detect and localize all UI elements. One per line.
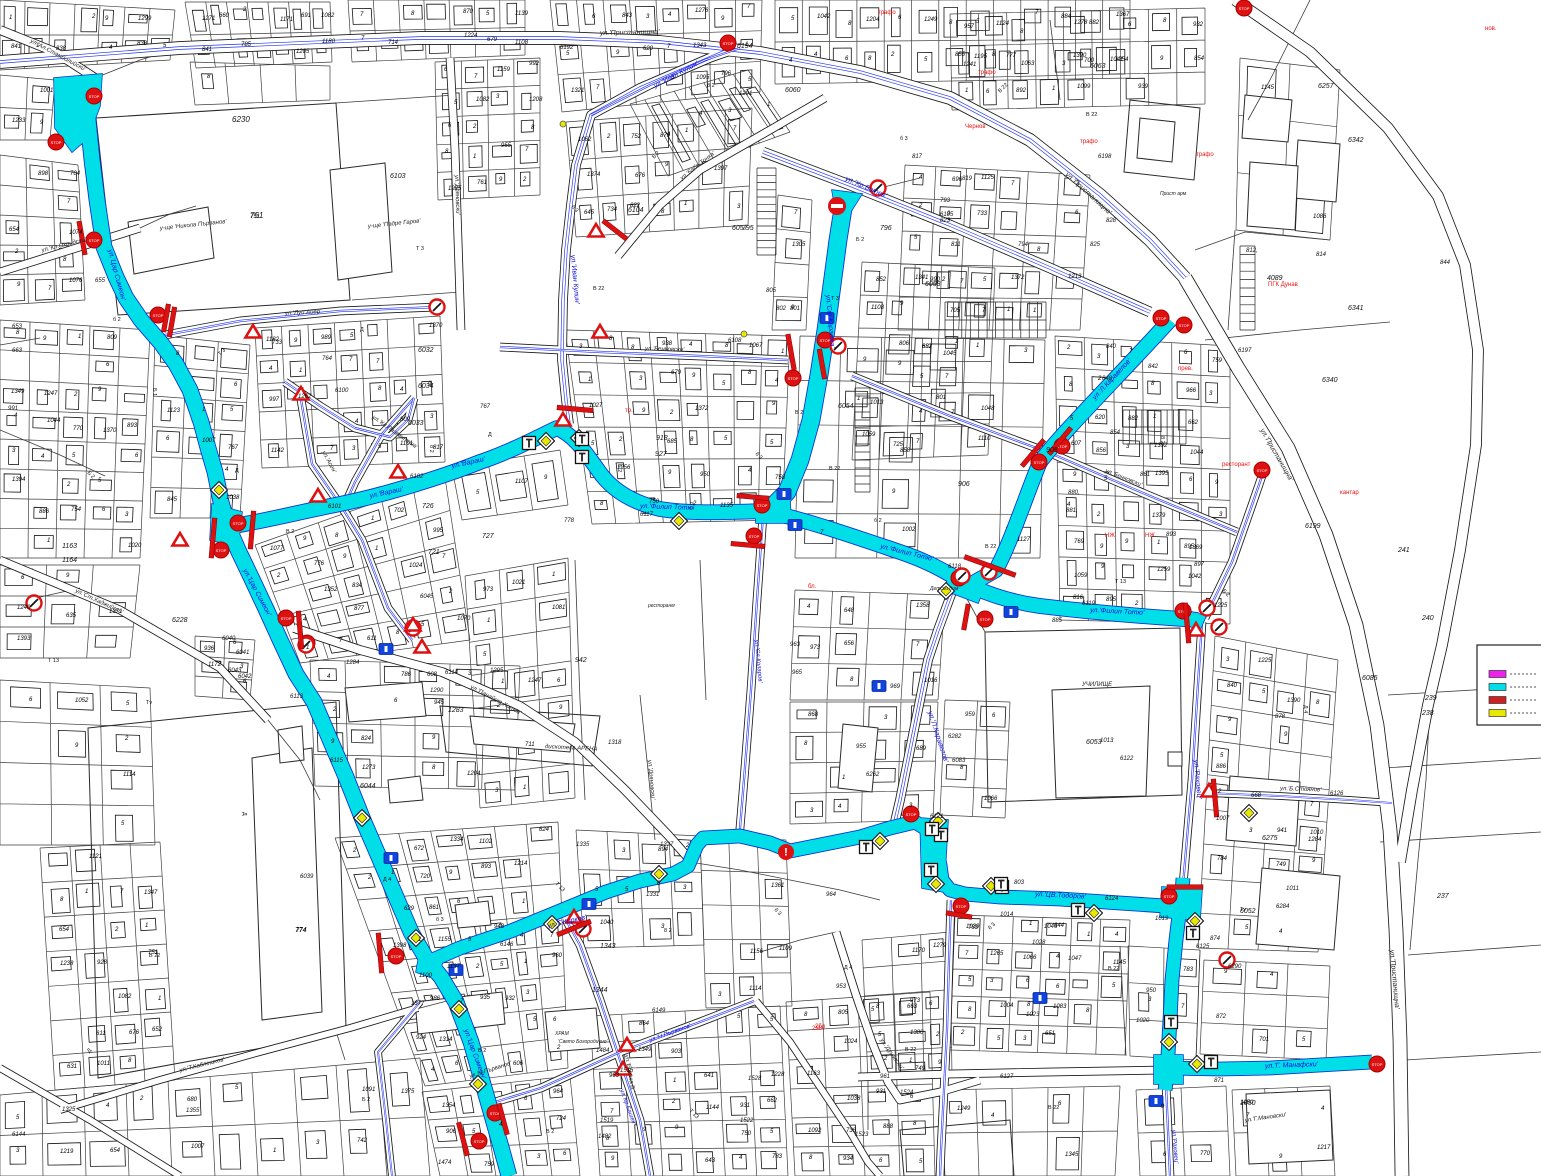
svg-text:1: 1 — [306, 645, 309, 651]
svg-text:STOP: STOP — [1156, 316, 1167, 321]
svg-text:932: 932 — [505, 996, 516, 1002]
svg-text:793: 793 — [940, 198, 951, 204]
svg-text:1334: 1334 — [450, 837, 464, 843]
svg-text:1217: 1217 — [1317, 1145, 1331, 1151]
svg-text:1042: 1042 — [817, 14, 831, 20]
svg-text:1163: 1163 — [807, 1071, 821, 1077]
svg-text:2: 2 — [960, 1030, 965, 1036]
svg-text:1109: 1109 — [779, 946, 793, 952]
svg-text:6198: 6198 — [1098, 154, 1112, 160]
svg-text:1482: 1482 — [598, 1134, 612, 1140]
svg-text:1522: 1522 — [740, 1118, 754, 1124]
svg-text:761: 761 — [477, 180, 487, 186]
svg-text:905: 905 — [1046, 447, 1058, 454]
svg-text:6034: 6034 — [418, 383, 434, 390]
svg-text:1099: 1099 — [1077, 84, 1091, 90]
svg-text:1515: 1515 — [620, 1068, 634, 1074]
svg-text:941: 941 — [1277, 828, 1287, 834]
svg-text:2бл: 2бл — [815, 1024, 826, 1030]
svg-text:1352: 1352 — [324, 587, 338, 593]
svg-text:Т 13: Т 13 — [48, 658, 59, 664]
svg-text:1358: 1358 — [916, 603, 930, 609]
svg-text:1163: 1163 — [62, 543, 77, 550]
svg-text:1020: 1020 — [1136, 1018, 1150, 1024]
svg-text:1: 1 — [588, 377, 591, 383]
svg-text:960: 960 — [552, 953, 563, 959]
svg-text:1372: 1372 — [1011, 275, 1025, 281]
svg-text:796: 796 — [880, 225, 892, 232]
svg-text:1010: 1010 — [1310, 830, 1324, 836]
svg-text:1343: 1343 — [600, 943, 616, 950]
svg-text:726: 726 — [422, 503, 434, 510]
svg-text:STOP: STOP — [89, 238, 100, 243]
svg-text:624: 624 — [539, 827, 550, 833]
svg-text:1: 1 — [857, 396, 860, 402]
svg-text:STOP: STOP — [1239, 6, 1250, 11]
svg-text:трафо: трафо — [1196, 152, 1214, 158]
svg-text:'Свето Богородично': 'Свето Богородично' — [558, 1039, 609, 1045]
svg-text:трафо: трафо — [1080, 139, 1098, 145]
svg-text:854: 854 — [1110, 430, 1121, 436]
svg-text:1390: 1390 — [1287, 698, 1301, 704]
svg-text:1124: 1124 — [996, 21, 1010, 27]
svg-text:1050: 1050 — [1240, 1100, 1254, 1106]
svg-text:2: 2 — [671, 1099, 676, 1105]
svg-text:892: 892 — [1016, 88, 1027, 94]
svg-text:STOP: STOP — [1164, 894, 1175, 899]
svg-text:1007: 1007 — [191, 1144, 205, 1150]
svg-text:1016: 1016 — [924, 678, 938, 684]
svg-text:1290: 1290 — [430, 688, 444, 694]
svg-text:811: 811 — [951, 242, 961, 248]
svg-text:STOP: STOP — [1034, 460, 1045, 465]
svg-text:751: 751 — [250, 214, 260, 220]
svg-text:679: 679 — [671, 370, 682, 376]
svg-text:1145: 1145 — [1261, 85, 1275, 91]
svg-text:1: 1 — [1007, 307, 1010, 313]
svg-text:660: 660 — [219, 13, 230, 19]
svg-text:1: 1 — [1052, 86, 1055, 92]
svg-text:1046: 1046 — [1044, 924, 1058, 930]
svg-text:858: 858 — [900, 448, 911, 454]
svg-text:945: 945 — [434, 700, 445, 706]
svg-text:963: 963 — [609, 1073, 620, 1079]
svg-text:794: 794 — [1018, 242, 1029, 248]
svg-text:В 22: В 22 — [905, 1047, 916, 1053]
svg-text:1027: 1027 — [589, 403, 603, 409]
svg-text:2: 2 — [890, 52, 895, 58]
svg-text:6192: 6192 — [560, 45, 574, 51]
svg-text:1262: 1262 — [298, 394, 312, 400]
svg-text:805: 805 — [838, 1010, 849, 1016]
svg-text:239: 239 — [1424, 695, 1437, 702]
svg-text:6122: 6122 — [1120, 756, 1134, 762]
svg-text:1007: 1007 — [202, 438, 216, 444]
svg-text:931: 931 — [876, 1089, 886, 1095]
svg-text:727: 727 — [482, 533, 495, 540]
svg-text:961: 961 — [880, 1074, 890, 1080]
svg-text:6058: 6058 — [925, 281, 941, 288]
svg-text:1038: 1038 — [847, 1096, 861, 1102]
svg-text:1233: 1233 — [12, 118, 26, 124]
svg-text:656: 656 — [844, 641, 855, 647]
svg-text:721: 721 — [428, 549, 440, 556]
svg-text:238: 238 — [1421, 710, 1434, 717]
svg-text:1083: 1083 — [1053, 1004, 1067, 1010]
svg-text:1100: 1100 — [419, 973, 433, 979]
svg-text:1164: 1164 — [62, 557, 77, 564]
svg-text:868: 868 — [808, 712, 819, 718]
svg-text:1040: 1040 — [600, 920, 614, 926]
svg-text:1249: 1249 — [957, 1106, 971, 1112]
svg-text:702: 702 — [394, 508, 405, 514]
svg-text:В 22: В 22 — [149, 953, 160, 959]
svg-text:1066: 1066 — [984, 796, 998, 802]
svg-text:943: 943 — [494, 924, 505, 930]
svg-text:1225: 1225 — [1258, 658, 1272, 664]
svg-text:1180: 1180 — [322, 39, 336, 45]
svg-text:6262: 6262 — [866, 772, 880, 778]
svg-text:2: 2 — [606, 134, 611, 140]
svg-text:В 22: В 22 — [1048, 1105, 1059, 1111]
svg-text:959: 959 — [965, 712, 976, 718]
svg-text:1398: 1398 — [393, 943, 407, 949]
svg-text:2: 2 — [918, 203, 923, 209]
svg-text:662: 662 — [767, 1098, 778, 1104]
svg-text:6127: 6127 — [1000, 1074, 1014, 1080]
svg-text:1: 1 — [781, 349, 784, 355]
svg-text:1205: 1205 — [296, 49, 310, 55]
svg-text:1: 1 — [418, 937, 421, 943]
svg-text:1295: 1295 — [490, 668, 504, 674]
svg-text:802: 802 — [776, 306, 787, 312]
svg-text:2: 2 — [114, 927, 119, 933]
svg-text:861: 861 — [1140, 472, 1150, 478]
svg-text:2: 2 — [475, 964, 480, 970]
svg-text:1086: 1086 — [1313, 214, 1327, 220]
svg-text:В 22: В 22 — [1108, 966, 1119, 972]
svg-text:1052: 1052 — [75, 698, 89, 704]
svg-text:STOP: STOP — [153, 313, 164, 318]
svg-text:834: 834 — [352, 583, 363, 589]
svg-text:854: 854 — [1194, 56, 1205, 62]
svg-text:806: 806 — [899, 341, 910, 347]
svg-text:870: 870 — [463, 9, 474, 15]
svg-text:1265: 1265 — [990, 951, 1004, 957]
svg-text:874: 874 — [1210, 936, 1221, 942]
svg-text:1: 1 — [522, 899, 525, 905]
svg-text:6124: 6124 — [1105, 896, 1119, 902]
svg-text:691: 691 — [301, 13, 311, 19]
svg-text:882: 882 — [1128, 416, 1139, 422]
svg-text:1044: 1044 — [47, 418, 61, 424]
svg-text:882: 882 — [1089, 20, 1100, 26]
svg-text:1: 1 — [1153, 414, 1156, 420]
svg-text:842: 842 — [1148, 364, 1159, 370]
svg-text:6228: 6228 — [172, 617, 188, 624]
svg-text:1102: 1102 — [479, 839, 493, 845]
svg-text:886: 886 — [1216, 764, 1227, 770]
svg-text:824: 824 — [361, 736, 372, 742]
svg-text:733: 733 — [977, 211, 988, 217]
svg-text:1228: 1228 — [771, 1072, 785, 1078]
svg-text:1204: 1204 — [866, 17, 880, 23]
svg-text:1524: 1524 — [900, 1090, 914, 1096]
svg-text:770: 770 — [1200, 1151, 1211, 1157]
svg-text:8 2: 8 2 — [1159, 436, 1165, 444]
svg-text:6044: 6044 — [360, 783, 376, 790]
svg-text:Тv: Тv — [146, 700, 152, 706]
svg-text:237: 237 — [1436, 893, 1450, 900]
svg-text:1002: 1002 — [902, 527, 916, 533]
svg-text:1213: 1213 — [1068, 274, 1082, 280]
svg-text:1: 1 — [145, 923, 148, 929]
svg-text:кантар: кантар — [1340, 490, 1359, 496]
svg-text:В 2: В 2 — [478, 1048, 486, 1054]
svg-text:654: 654 — [59, 927, 70, 933]
svg-text:1070: 1070 — [457, 616, 471, 622]
svg-text:924: 924 — [416, 1035, 427, 1041]
svg-text:679: 679 — [487, 37, 498, 43]
svg-text:6085: 6085 — [1362, 675, 1378, 682]
svg-text:1: 1 — [909, 1058, 912, 1064]
svg-text:STOP: STOP — [281, 616, 292, 621]
svg-text:Б 2: Б 2 — [362, 1097, 370, 1103]
svg-text:1: 1 — [47, 538, 50, 544]
svg-text:2: 2 — [1134, 601, 1139, 607]
svg-text:6341: 6341 — [1348, 305, 1364, 312]
svg-text:662: 662 — [1188, 420, 1199, 426]
svg-text:1: 1 — [487, 618, 490, 624]
svg-text:1062: 1062 — [578, 137, 592, 143]
svg-text:631: 631 — [67, 1064, 77, 1070]
svg-text:742: 742 — [357, 1138, 368, 1144]
svg-text:6083: 6083 — [952, 758, 966, 764]
svg-text:840: 840 — [1106, 344, 1117, 350]
svg-text:6121: 6121 — [930, 814, 943, 820]
svg-text:6060: 6060 — [785, 87, 801, 94]
svg-text:672: 672 — [414, 846, 425, 852]
svg-text:1318: 1318 — [608, 740, 622, 746]
svg-text:2: 2 — [91, 14, 96, 20]
svg-text:1327: 1327 — [660, 842, 674, 848]
svg-text:805: 805 — [766, 288, 777, 294]
svg-text:ресторанм: ресторанм — [647, 603, 675, 609]
svg-text:861: 861 — [429, 905, 439, 911]
svg-text:764: 764 — [322, 356, 333, 362]
svg-text:241: 241 — [1397, 547, 1410, 554]
svg-text:1074: 1074 — [69, 230, 83, 236]
svg-text:1259: 1259 — [1157, 567, 1171, 573]
svg-text:Д: Д — [241, 812, 247, 816]
svg-text:734: 734 — [607, 207, 618, 213]
svg-text:1331: 1331 — [646, 892, 659, 898]
svg-text:2: 2 — [139, 1096, 144, 1102]
svg-text:6125: 6125 — [1196, 944, 1210, 950]
svg-text:1108: 1108 — [871, 305, 885, 311]
svg-text:1: 1 — [391, 870, 394, 876]
svg-text:6041: 6041 — [236, 650, 249, 656]
svg-text:1372: 1372 — [695, 406, 709, 412]
svg-text:1375: 1375 — [401, 1089, 415, 1095]
svg-text:6119: 6119 — [1082, 601, 1096, 607]
svg-text:871: 871 — [1214, 1078, 1224, 1084]
svg-text:1038: 1038 — [226, 495, 240, 501]
svg-text:4089: 4089 — [1267, 275, 1283, 282]
svg-text:УЧИЛИЩЕ: УЧИЛИЩЕ — [1081, 682, 1113, 688]
svg-text:654: 654 — [110, 1148, 121, 1154]
svg-text:1: 1 — [524, 959, 527, 965]
svg-text:1082: 1082 — [321, 13, 335, 19]
svg-text:957: 957 — [964, 24, 975, 30]
svg-text:814: 814 — [1316, 252, 1327, 258]
svg-text:1370: 1370 — [429, 323, 443, 329]
svg-text:1380: 1380 — [910, 1030, 924, 1036]
svg-text:1224: 1224 — [464, 33, 478, 39]
svg-text:1345: 1345 — [1065, 1152, 1079, 1158]
svg-text:2: 2 — [332, 707, 337, 713]
svg-text:Д 4: Д 4 — [844, 965, 852, 971]
svg-text:1076: 1076 — [69, 278, 83, 284]
svg-text:1127: 1127 — [1017, 537, 1031, 543]
svg-text:720: 720 — [420, 874, 431, 880]
svg-text:635: 635 — [66, 613, 77, 619]
svg-text:1123: 1123 — [167, 408, 181, 414]
svg-text:783: 783 — [1183, 967, 1194, 973]
svg-text:STOP: STOP — [216, 548, 227, 553]
svg-text:759: 759 — [1212, 358, 1223, 364]
svg-text:1374: 1374 — [587, 172, 601, 178]
svg-text:966: 966 — [1186, 388, 1197, 394]
svg-text:1: 1 — [523, 785, 526, 791]
svg-text:1377: 1377 — [411, 1001, 425, 1007]
svg-text:STOP: STOP — [51, 140, 62, 145]
svg-text:1023: 1023 — [1026, 1012, 1040, 1018]
svg-text:689: 689 — [916, 746, 927, 752]
svg-text:1: 1 — [685, 128, 688, 134]
svg-text:620: 620 — [643, 46, 654, 52]
svg-text:б 2: б 2 — [874, 518, 882, 524]
svg-text:1219: 1219 — [60, 1149, 74, 1155]
svg-text:1276: 1276 — [695, 8, 709, 14]
svg-text:6104: 6104 — [628, 207, 644, 214]
svg-text:1011: 1011 — [1286, 886, 1299, 892]
svg-text:643: 643 — [705, 1158, 716, 1164]
svg-text:2: 2 — [1217, 789, 1222, 795]
svg-text:2: 2 — [935, 1032, 940, 1038]
svg-text:6282: 6282 — [948, 734, 962, 740]
svg-text:837: 837 — [922, 344, 933, 350]
svg-text:1144: 1144 — [706, 1105, 720, 1111]
svg-text:942: 942 — [575, 657, 587, 664]
svg-text:1028: 1028 — [1032, 940, 1046, 946]
svg-text:918: 918 — [656, 435, 668, 442]
svg-text:1279: 1279 — [933, 943, 947, 949]
svg-text:758: 758 — [775, 475, 786, 481]
svg-text:2: 2 — [883, 1056, 888, 1062]
svg-text:6113: 6113 — [290, 694, 304, 700]
svg-text:752: 752 — [631, 134, 642, 140]
svg-text:6045: 6045 — [420, 594, 434, 600]
svg-text:1107: 1107 — [515, 479, 529, 485]
svg-text:НЖ: НЖ — [1145, 533, 1155, 539]
svg-text:648: 648 — [844, 608, 855, 614]
svg-text:651: 651 — [1045, 1031, 1055, 1037]
svg-text:6149: 6149 — [652, 1008, 666, 1014]
svg-text:1059: 1059 — [862, 432, 876, 438]
svg-text:Б 1: Б 1 — [151, 388, 157, 396]
svg-text:6102: 6102 — [410, 474, 424, 480]
svg-text:1325: 1325 — [62, 1107, 76, 1113]
svg-text:611: 611 — [367, 636, 377, 642]
svg-text:6194: 6194 — [737, 43, 753, 50]
svg-text:Д: Д — [360, 327, 364, 333]
svg-text:852: 852 — [876, 277, 887, 283]
svg-text:606: 606 — [513, 1061, 524, 1067]
svg-text:1195: 1195 — [974, 54, 988, 60]
svg-text:6103: 6103 — [390, 173, 406, 180]
svg-text:нов.: нов. — [1485, 26, 1497, 32]
svg-text:1379: 1379 — [1152, 513, 1166, 519]
svg-text:1214: 1214 — [514, 861, 528, 867]
svg-text:973: 973 — [810, 645, 821, 651]
svg-text:прев.: прев. — [1178, 366, 1193, 372]
svg-text:1024: 1024 — [844, 1039, 858, 1045]
svg-text:685: 685 — [667, 439, 678, 445]
svg-text:2: 2 — [448, 589, 453, 595]
svg-text:823: 823 — [940, 218, 951, 224]
svg-text:6057: 6057 — [732, 225, 749, 232]
svg-text:240: 240 — [1421, 615, 1434, 622]
svg-text:931: 931 — [740, 1103, 750, 1109]
svg-text:1020: 1020 — [128, 543, 142, 549]
svg-text:939: 939 — [1138, 84, 1149, 90]
svg-text:Детски дом: Детски дом — [929, 586, 959, 592]
svg-text:6197: 6197 — [1238, 348, 1252, 354]
svg-text:991: 991 — [8, 406, 18, 412]
svg-text:6284: 6284 — [1276, 904, 1290, 910]
svg-text:1: 1 — [1033, 308, 1036, 314]
svg-text:714: 714 — [388, 40, 399, 46]
svg-text:711: 711 — [525, 742, 535, 748]
svg-text:STOP: STOP — [980, 617, 991, 622]
svg-text:770: 770 — [73, 426, 84, 432]
svg-text:трафо: трафо — [878, 10, 896, 16]
svg-text:864: 864 — [639, 1021, 650, 1027]
svg-text:629: 629 — [404, 906, 415, 912]
svg-text:964: 964 — [553, 1089, 564, 1095]
svg-text:1354: 1354 — [442, 1103, 456, 1109]
svg-text:6115: 6115 — [330, 758, 344, 764]
svg-text:STOP: STOP — [788, 376, 799, 381]
svg-text:трафо: трафо — [978, 70, 996, 76]
svg-text:856: 856 — [1096, 448, 1107, 454]
svg-text:1523: 1523 — [855, 1132, 869, 1138]
svg-text:1066: 1066 — [1023, 955, 1037, 961]
svg-text:878: 878 — [1275, 714, 1286, 720]
svg-text:1: 1 — [842, 775, 845, 781]
svg-text:1: 1 — [955, 339, 958, 345]
svg-text:1004: 1004 — [1000, 1003, 1014, 1009]
svg-text:6118: 6118 — [948, 564, 962, 570]
svg-text:906: 906 — [958, 481, 970, 488]
svg-text:1108: 1108 — [515, 40, 529, 46]
svg-text:1273: 1273 — [362, 765, 376, 771]
svg-text:6040: 6040 — [222, 636, 236, 642]
svg-text:2: 2 — [669, 410, 674, 416]
svg-text:652: 652 — [152, 1027, 163, 1033]
svg-text:8 2: 8 2 — [707, 83, 715, 89]
